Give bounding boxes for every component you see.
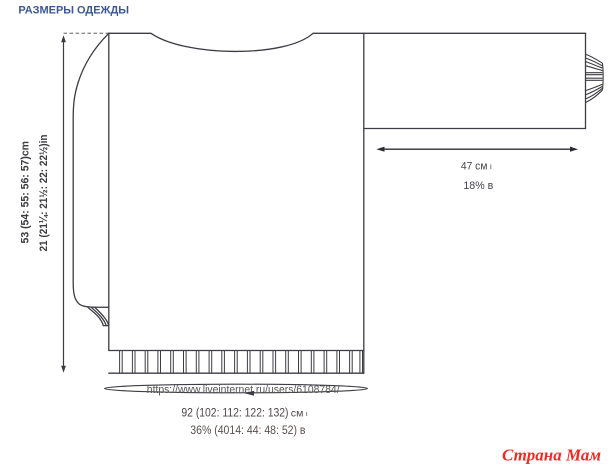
svg-text:ı: ı (490, 162, 492, 171)
svg-text:Страна Мам: Страна Мам (502, 446, 601, 465)
svg-text:ı: ı (306, 409, 308, 418)
svg-text:РАЗМЕРЫ ОДЕЖДЫ: РАЗМЕРЫ ОДЕЖДЫ (18, 5, 129, 17)
svg-text:21 (21¼: 21½: 22: 22½)in: 21 (21¼: 21½: 22: 22½)in (38, 134, 50, 251)
svg-text:см: см (291, 408, 304, 420)
svg-text:18% в: 18% в (463, 180, 493, 192)
svg-text:36% (4014: 44: 48: 52) в: 36% (4014: 44: 48: 52) в (190, 423, 306, 437)
svg-text:47 см: 47 см (461, 161, 488, 173)
svg-text:https://www.liveinternet.ru/us: https://www.liveinternet.ru/users/610878… (147, 384, 341, 396)
svg-text:92 (102: 112: 122: 132): 92 (102: 112: 122: 132) (181, 406, 288, 420)
svg-text:53 (54: 55: 56: 57)cm: 53 (54: 55: 56: 57)cm (20, 141, 32, 244)
